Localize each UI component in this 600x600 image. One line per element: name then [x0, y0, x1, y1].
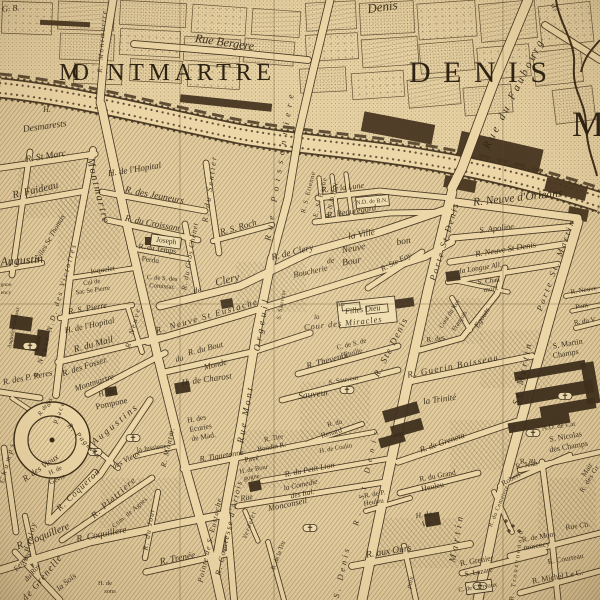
paper-vignette: [0, 0, 600, 600]
paris-map-engraving: G. B.DenisSRue BergereRue du FaubourgMON…: [0, 0, 600, 600]
map-screenshot: G. B.DenisSRue BergereRue du FaubourgMON…: [0, 0, 600, 600]
